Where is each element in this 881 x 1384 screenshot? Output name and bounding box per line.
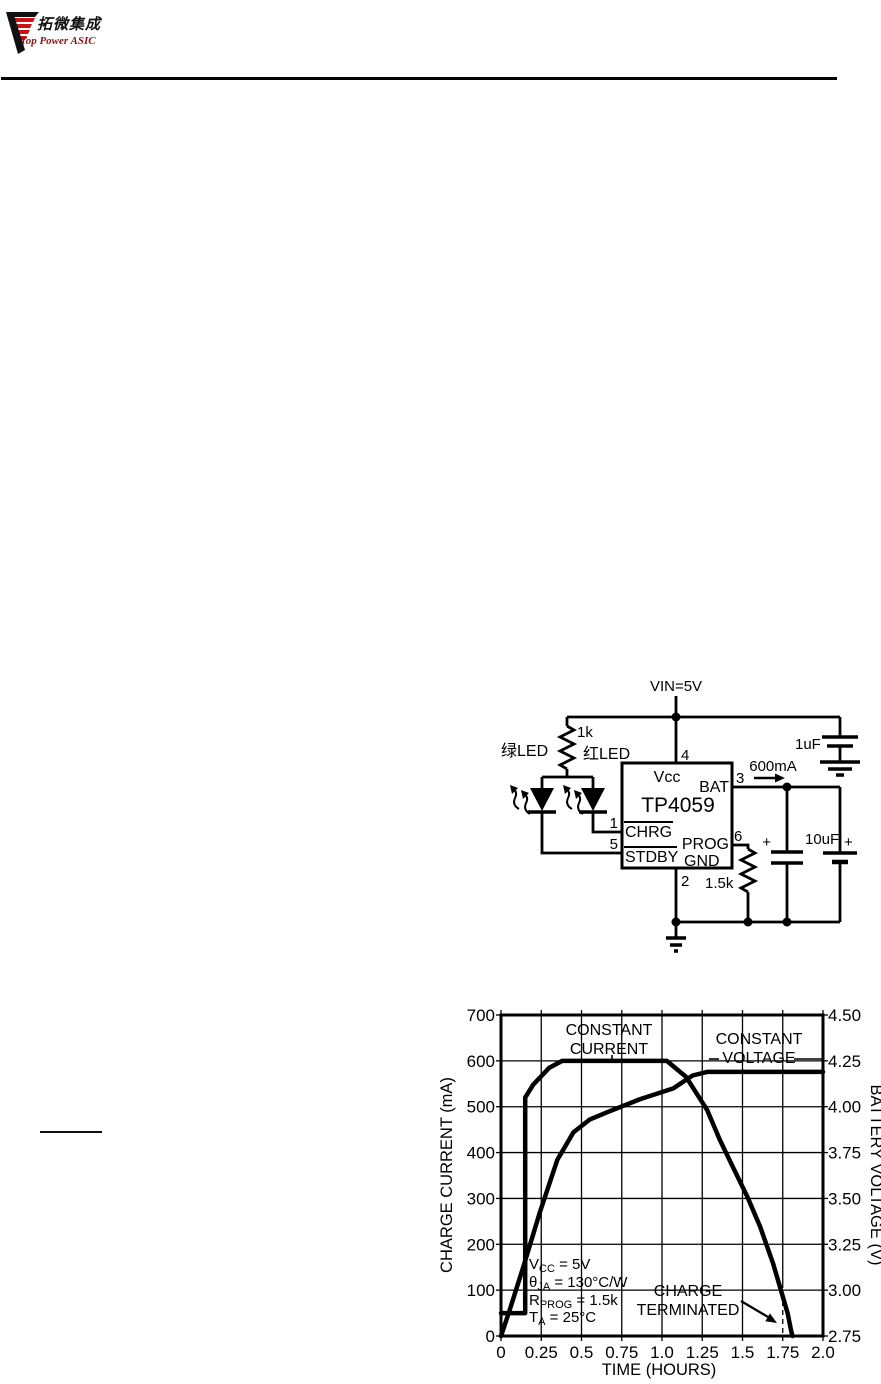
ground-icon — [666, 938, 686, 951]
pin-vcc-label: Vcc — [654, 769, 681, 786]
charge-terminated-arrowhead-icon — [765, 1313, 777, 1323]
pin1-number: 1 — [610, 815, 618, 832]
r-top-label: 1k — [577, 724, 593, 741]
cap-out-plus: + — [762, 834, 771, 851]
input-capacitor — [822, 737, 858, 746]
underline-segment — [40, 1131, 102, 1133]
battery-plus: + — [844, 834, 853, 851]
x-tick-label: 1.5 — [731, 1343, 755, 1362]
y-right-tick-label: 3.25 — [828, 1235, 861, 1254]
green-led-symbol — [528, 788, 556, 812]
green-led-label: 绿LED — [501, 742, 548, 760]
y-left-tick-label: 400 — [467, 1144, 495, 1163]
y-left-axis-title: CHARGE CURRENT (mA) — [438, 1077, 456, 1273]
pin6-number: 6 — [734, 828, 742, 845]
pin-gnd-label: GND — [684, 853, 720, 870]
company-name-chinese: 拓微集成 — [37, 13, 101, 34]
annotation-constant-current: CURRENT — [570, 1041, 648, 1058]
annotation-constant-current: CONSTANT — [566, 1022, 653, 1039]
charge-terminated-arrow — [741, 1301, 768, 1317]
y-left-tick-label: 0 — [486, 1327, 495, 1346]
y-left-tick-label: 200 — [467, 1235, 495, 1254]
chart-condition: TA = 25°C — [529, 1309, 596, 1328]
x-tick-label: 1.75 — [766, 1343, 799, 1362]
y-left-tick-label: 300 — [467, 1189, 495, 1208]
annotation-constant-voltage: VOLTAGE — [722, 1050, 795, 1067]
x-tick-label: 0.25 — [525, 1343, 558, 1362]
red-led-symbol — [579, 788, 607, 812]
cap-in-label: 1uF — [795, 736, 821, 753]
charge-cycle-chart: 00.250.50.751.01.251.51.752.001002003004… — [437, 1005, 881, 1384]
pin5-number: 5 — [610, 836, 618, 853]
x-tick-label: 0 — [496, 1343, 505, 1362]
annotation-charge-terminated: CHARGE — [654, 1283, 722, 1300]
x-tick-label: 0.75 — [605, 1343, 638, 1362]
x-axis-title: TIME (HOURS) — [602, 1361, 717, 1379]
annotation-constant-voltage: CONSTANT — [716, 1031, 803, 1048]
application-circuit-diagram: VIN=5V 1k 绿LED 红LED 4 Vcc BAT TP4059 CHR… — [478, 660, 881, 980]
company-name-english: Top Power ASIC — [20, 35, 96, 47]
pin3-number: 3 — [736, 770, 744, 787]
x-tick-label: 0.5 — [570, 1343, 594, 1362]
chart-condition: θJA = 130°C/W — [529, 1274, 628, 1293]
pin-chrg-label: CHRG — [625, 824, 672, 841]
y-right-tick-label: 3.00 — [828, 1281, 861, 1300]
x-tick-label: 1.0 — [650, 1343, 674, 1362]
charge-chart-svg: 00.250.50.751.01.251.51.752.001002003004… — [437, 1005, 881, 1384]
header-divider — [1, 77, 837, 80]
y-left-tick-label: 700 — [467, 1006, 495, 1025]
pin2-number: 2 — [681, 873, 689, 890]
annotation-charge-terminated: TERMINATED — [637, 1302, 740, 1319]
y-left-tick-label: 500 — [467, 1098, 495, 1117]
pin4-number: 4 — [681, 747, 689, 764]
vin-label: VIN=5V — [650, 678, 702, 695]
pin-prog-label: PROG — [682, 836, 729, 853]
cap-out-label: 10uF — [805, 831, 839, 848]
y-left-tick-label: 100 — [467, 1281, 495, 1300]
y-right-axis-title: BATTERY VOLTAGE (V) — [867, 1085, 881, 1266]
chart-condition: VCC = 5V — [529, 1256, 590, 1275]
output-capacitor — [771, 852, 803, 863]
y-right-tick-label: 4.00 — [828, 1098, 861, 1117]
red-led-label: 红LED — [583, 745, 630, 763]
chip-name: TP4059 — [641, 794, 715, 817]
pin-stdby-label: STDBY — [625, 849, 679, 866]
current-label: 600mA — [749, 758, 797, 775]
y-right-tick-label: 3.75 — [828, 1144, 861, 1163]
y-left-tick-label: 600 — [467, 1052, 495, 1071]
y-right-tick-label: 4.50 — [828, 1006, 861, 1025]
y-right-tick-label: 3.50 — [828, 1189, 861, 1208]
y-right-tick-label: 4.25 — [828, 1052, 861, 1071]
battery-symbol — [823, 853, 857, 862]
r-prog-label: 1.5k — [705, 875, 734, 892]
datasheet-page: 拓微集成 Top Power ASIC — [0, 0, 881, 1384]
input-cap-ground-icon — [820, 762, 860, 775]
y-right-tick-label: 2.75 — [828, 1327, 861, 1346]
x-tick-label: 1.25 — [686, 1343, 719, 1362]
